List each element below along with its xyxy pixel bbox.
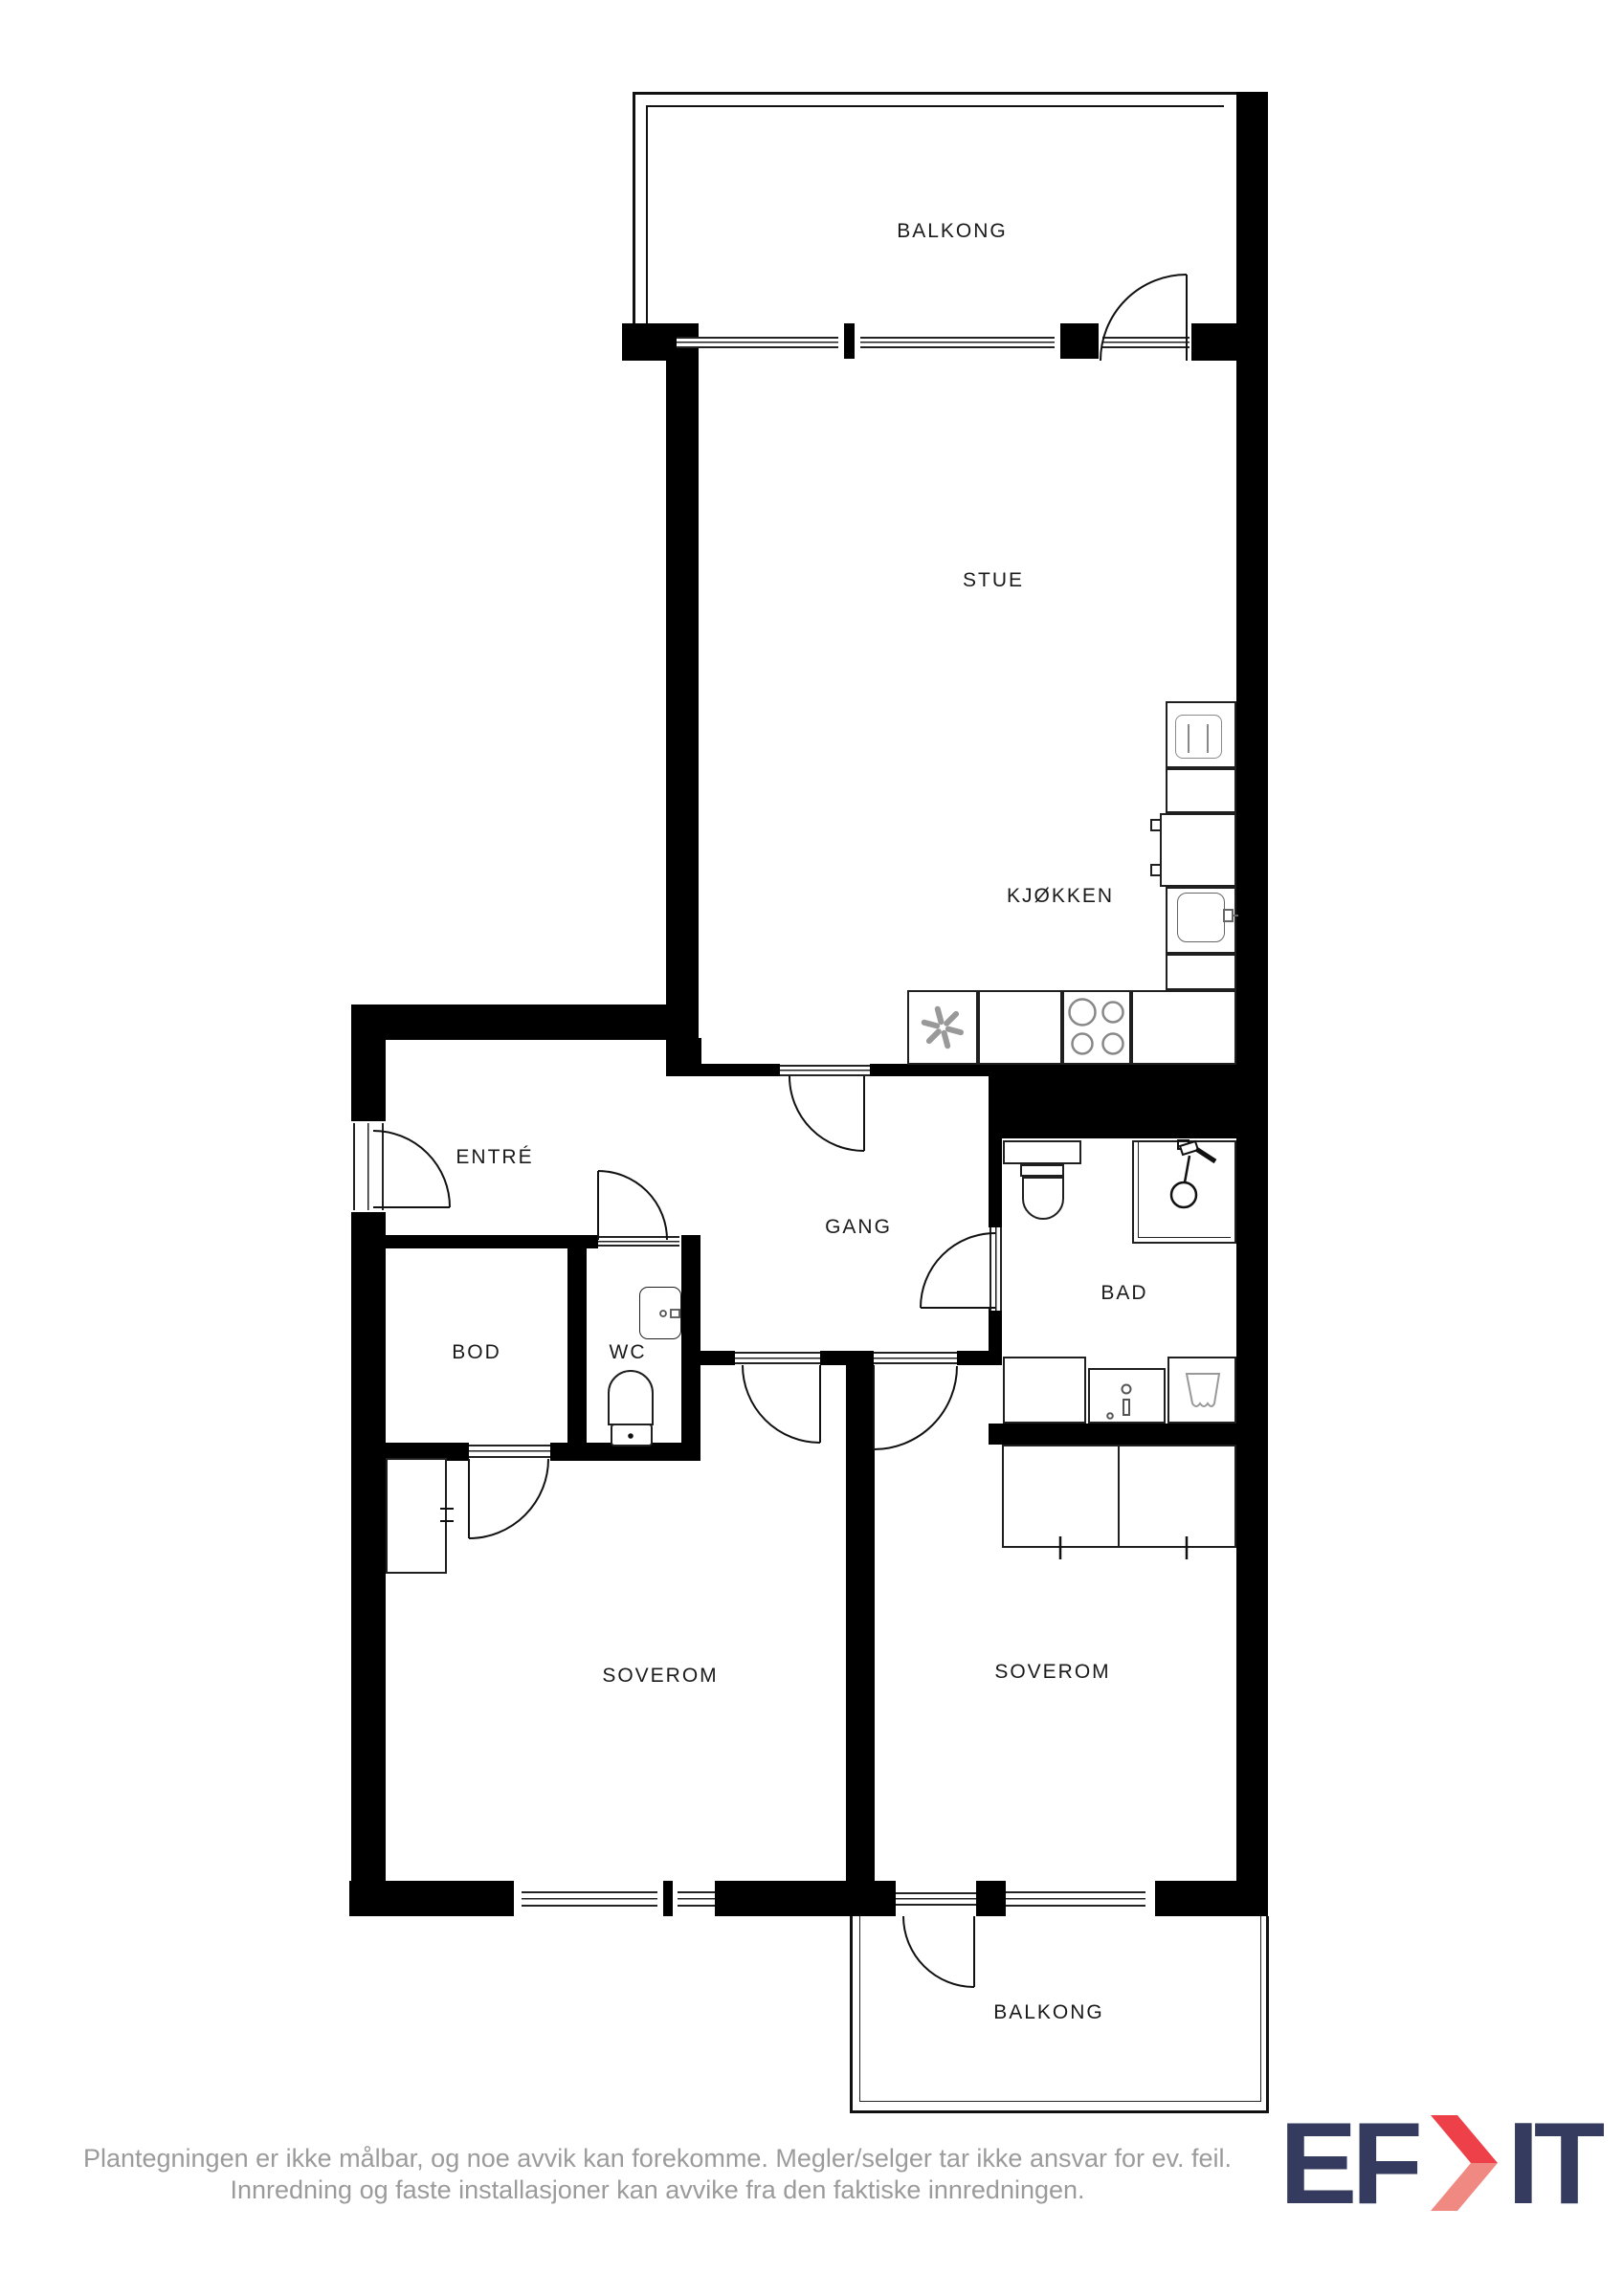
wall-soverom-divider (846, 1365, 875, 1881)
balcony-top-rail (646, 105, 648, 327)
balcony-top-rail (633, 92, 635, 327)
kitchen-unit-tab (1150, 864, 1162, 876)
window-soverom-left-1 (522, 1891, 657, 1907)
window-stue-1 (677, 337, 838, 348)
dishwasher-icon (1175, 715, 1222, 759)
kitchen-counter (978, 990, 1062, 1065)
room-label-kjokken: KJØKKEN (1007, 885, 1114, 908)
window-soverom-right (1006, 1891, 1145, 1907)
kitchen-oven-unit (1160, 813, 1236, 887)
efkt-logo: EF IT (1279, 2110, 1599, 2216)
logo-text-left: EF (1279, 2115, 1417, 2211)
wardrobe-icon (386, 1458, 447, 1574)
wall-bottom (976, 1881, 1006, 1916)
wall-left (351, 1212, 386, 1916)
wall (700, 1351, 735, 1365)
kitchen-unit-tab (1150, 819, 1162, 831)
balcony-top-rail (633, 92, 1238, 95)
wall-bod-wc-top (380, 1235, 598, 1248)
disclaimer-line-2: Innredning og faste installasjoner kan a… (19, 2175, 1296, 2206)
room-label-stue: STUE (963, 569, 1024, 592)
door-threshold-bod (469, 1445, 550, 1458)
washing-machine-icon (1167, 1357, 1236, 1424)
wall-bottom (349, 1881, 514, 1916)
room-label-balkong-bottom: BALKONG (993, 2001, 1104, 2024)
room-label-gang: GANG (825, 1216, 892, 1239)
room-label-soverom-left: SOVEROM (602, 1665, 718, 1688)
wall-left (351, 1004, 386, 1121)
door-threshold-gang (780, 1065, 870, 1076)
wall-kitchen-bad (989, 1065, 1236, 1138)
door-threshold-balcony-bottom (896, 1892, 976, 1906)
toilet-icon (1003, 1140, 1081, 1164)
door-threshold-wc (598, 1236, 679, 1247)
kitchen-counter (1166, 954, 1236, 990)
wc-sink-icon (639, 1287, 681, 1339)
door-swing-icon (874, 1366, 957, 1449)
door-swing-icon (921, 1233, 995, 1308)
room-label-balkong-top: BALKONG (897, 220, 1008, 243)
wall (957, 1351, 1002, 1365)
wc-toilet-icon (608, 1370, 654, 1425)
door-swing-icon (598, 1171, 667, 1240)
kitchen-sink-icon (1177, 893, 1225, 942)
wall-bod-right (567, 1248, 587, 1447)
closet-divider (1118, 1445, 1120, 1548)
room-label-bod: BOD (452, 1341, 501, 1364)
bathroom-sink-icon (1088, 1368, 1166, 1424)
door-swing-icon (789, 1076, 864, 1151)
wall-bottom (1155, 1881, 1268, 1916)
wall-gang-top (870, 1064, 989, 1076)
toilet-icon (1022, 1177, 1064, 1220)
window-soverom-left-2 (678, 1891, 715, 1907)
wall-gang-top (687, 1064, 780, 1076)
door-threshold-entry (353, 1123, 384, 1210)
wall-bottom (663, 1881, 673, 1916)
bathroom-cabinet (1003, 1357, 1086, 1424)
kitchen-counter (1131, 990, 1236, 1065)
door-swing-icon (743, 1365, 820, 1443)
door-swing-icon (373, 1131, 450, 1207)
disclaimer-line-1: Plantegningen er ikke målbar, og noe avv… (19, 2143, 1296, 2175)
wall-entre-top (351, 1004, 689, 1040)
wall-stue-left (666, 323, 699, 1076)
door-threshold-balcony-top (1102, 337, 1189, 348)
door-threshold-soverom-left (735, 1352, 820, 1364)
kitchen-counter (1166, 768, 1236, 813)
wall-bad-bottom (989, 1424, 1268, 1445)
wc-toilet-icon (611, 1424, 653, 1446)
kitchen-stove (1062, 990, 1131, 1065)
balcony-top-rail (646, 105, 1224, 107)
wall (844, 323, 855, 359)
wall (1191, 323, 1236, 361)
room-label-wc: WC (610, 1341, 647, 1364)
door-swing-icon (469, 1459, 548, 1538)
toilet-icon (1020, 1164, 1064, 1177)
room-label-bad: BAD (1101, 1282, 1147, 1305)
logo-chevron-icon (1421, 2115, 1503, 2211)
kitchen-counter (907, 990, 978, 1065)
window-stue-2 (860, 337, 1055, 348)
floorplan-page: BALKONG STUE KJØKKEN ENTRÉ GANG BAD BOD … (0, 0, 1623, 2296)
wall-bad-left (989, 1138, 1002, 1227)
wall-wc-right (681, 1235, 700, 1461)
disclaimer-text: Plantegningen er ikke målbar, og noe avv… (19, 2143, 1296, 2206)
wall (1060, 323, 1099, 359)
door-threshold-bad (989, 1227, 1002, 1311)
room-label-entre: ENTRÉ (456, 1146, 533, 1169)
door-threshold-soverom-right (874, 1352, 957, 1364)
logo-text-right: IT (1507, 2115, 1599, 2211)
wall-right (1236, 92, 1268, 1916)
wall (820, 1351, 874, 1365)
room-label-soverom-right: SOVEROM (994, 1661, 1110, 1684)
wall-bottom (715, 1881, 896, 1916)
shower-inner-line (1138, 1140, 1231, 1238)
